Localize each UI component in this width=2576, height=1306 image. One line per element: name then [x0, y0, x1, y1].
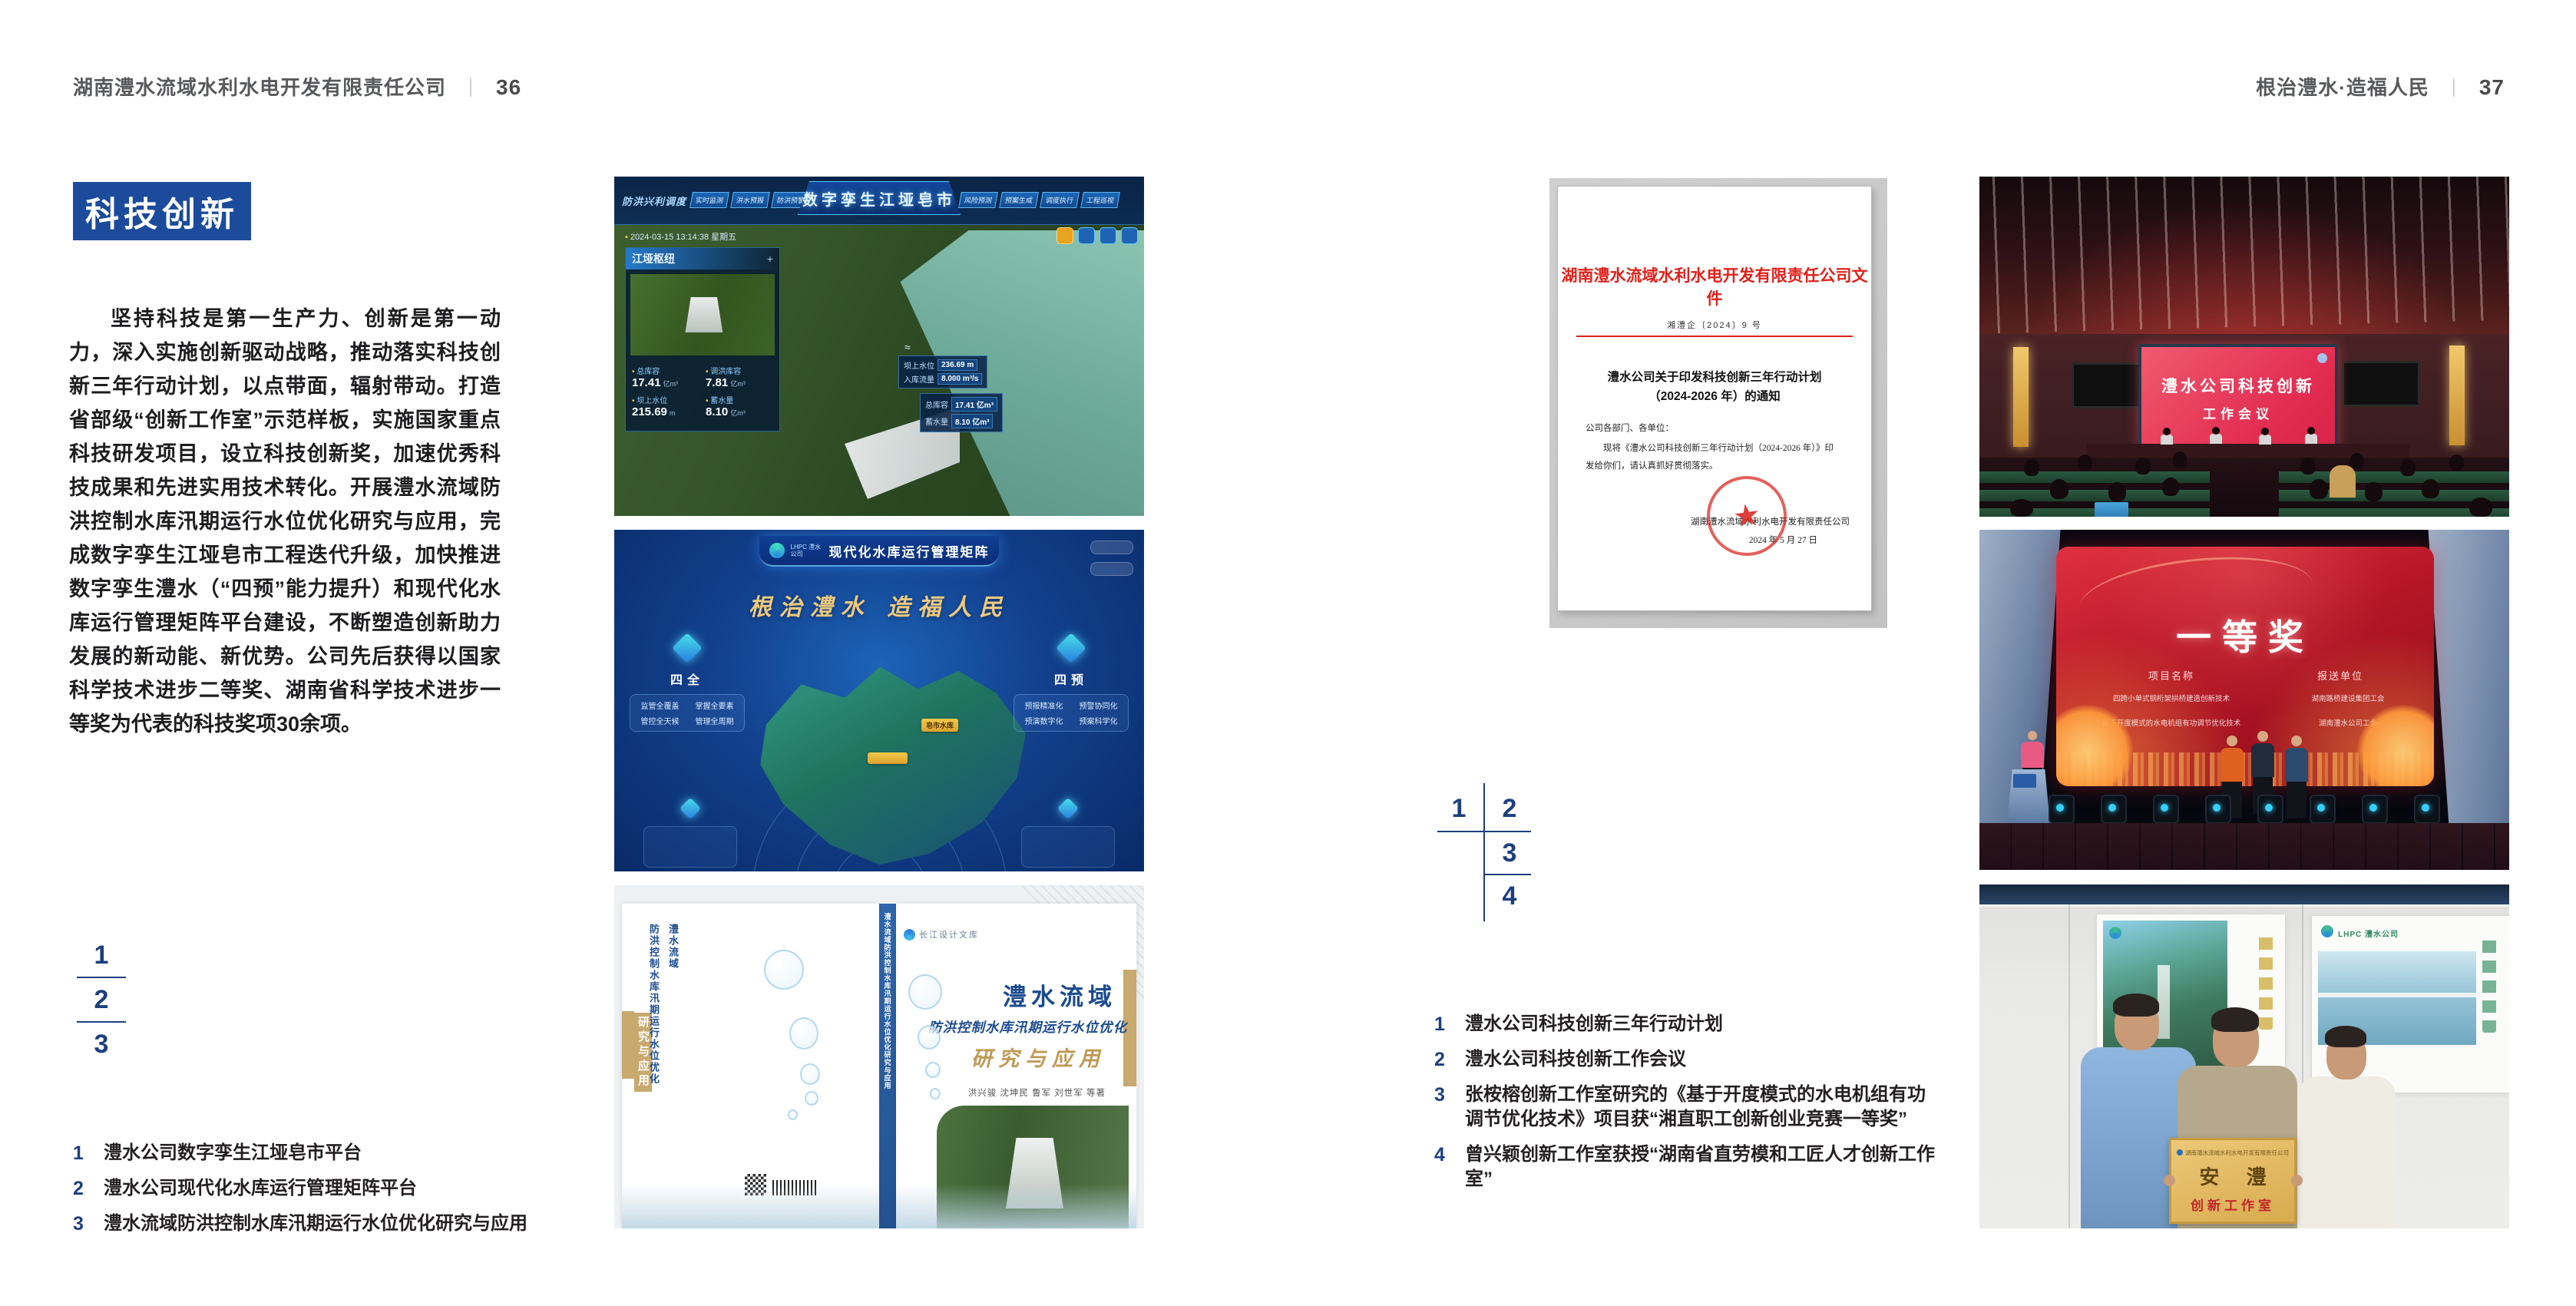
- column-project-name: 项目名称: [2102, 668, 2240, 683]
- notice-title-line2: （2024-2026 年）的通知: [1558, 387, 1871, 404]
- platform-title-banner: LHPC 澧水公司 现代化水库运行管理矩阵: [759, 536, 999, 567]
- expand-icon[interactable]: +: [767, 253, 773, 265]
- caption-text: 澧水公司数字孪生江垭皂市平台: [104, 1141, 362, 1165]
- caption-number: 4: [1434, 1142, 1453, 1192]
- water-droplet: [918, 1025, 941, 1050]
- notice-title-line1: 澧水公司关于印发科技创新三年行动计划: [1558, 368, 1871, 385]
- dashboard-brand: 防洪兴利调度: [622, 193, 686, 208]
- audience-member: [2400, 459, 2416, 476]
- hand: [2164, 1175, 2175, 1186]
- index-divider: [1483, 783, 1485, 921]
- caption-row: 2 澧水公司科技创新工作会议: [1434, 1047, 1938, 1072]
- man-blue-shirt-head: [2115, 1000, 2159, 1050]
- stage-light: [2049, 795, 2075, 824]
- audience-member: [2300, 458, 2316, 474]
- audience-member: [2422, 479, 2439, 498]
- publisher-logo-icon: [904, 929, 915, 941]
- book-authors: 洪兴骏 沈坤民 鲁军 刘世军 等著: [968, 1086, 1106, 1099]
- diamond-icon: [1056, 633, 1086, 663]
- caption-number: 2: [1434, 1047, 1453, 1072]
- book-front-cover: 长江设计文库 澧水流域 防洪控制水库汛期运行水位优化 研究与应用 洪兴骏 沈坤民…: [896, 904, 1136, 1228]
- stat-total-capacity: 总库容 17.41亿m³: [632, 365, 699, 389]
- dam-thumbnail: [630, 274, 775, 355]
- document-number: 湘澧企〔2024〕9 号: [1558, 319, 1871, 331]
- first-prize-title: 一等奖: [2056, 610, 2434, 660]
- index-divider: [1437, 831, 1531, 832]
- caption-row: 4 曾兴颖创新工作室获授“湖南省直劳模和工匠人才创新工作室”: [1434, 1142, 1938, 1192]
- water-droplet: [930, 1088, 941, 1099]
- stat-storage: 蓄水量 8.10亿m³: [706, 394, 773, 418]
- audience-member: [2010, 499, 2033, 517]
- dashboard-tabs-left: 实时监测 洪水预报 防洪预警: [691, 192, 809, 208]
- magazine-spread: 湖南澧水流域水利水电开发有限责任公司 ｜ 36 根治澧水·造福人民 ｜ 37 科…: [0, 0, 2576, 1306]
- panel-speaker: [2259, 435, 2271, 445]
- screen-logo-icon: [2317, 353, 2327, 363]
- layers-icon[interactable]: [1078, 227, 1095, 244]
- stage-light: [2310, 795, 2336, 824]
- dashboard-tabs-right: 风险预测 预案生成 调度执行 工程巡视: [960, 192, 1119, 208]
- panel-speaker: [2210, 434, 2222, 444]
- ceiling-band: [1979, 884, 2509, 907]
- dashboard-title: 数字孪生江垭皂市: [798, 181, 961, 215]
- tab-project-inspection[interactable]: 工程巡视: [1080, 192, 1120, 208]
- figure-award-ceremony: 一等奖 项目名称 报送单位 四跨小单式钢桁架拱桥建造创新技术 湖南路桥建设集团工…: [1979, 530, 2509, 870]
- publisher-badge: 长江设计文库: [904, 928, 979, 941]
- tan-accent-block: [622, 1011, 634, 1079]
- caption-number: 1: [73, 1141, 91, 1165]
- water-droplet: [805, 1091, 818, 1106]
- reservoir-map-label-small[interactable]: [868, 752, 908, 764]
- group-name: 四全: [630, 670, 745, 688]
- audience-member: [2108, 482, 2126, 501]
- caption-row: 3 张桉榕创新工作室研究的《基于开度模式的水电机组有功调节优化技术》项目获“湘直…: [1434, 1083, 1938, 1132]
- reservoir-map-label[interactable]: 皂市水库: [921, 719, 958, 732]
- page-number-left: 36: [496, 75, 521, 100]
- meeting-title-line1: 澧水公司科技创新: [2161, 374, 2315, 397]
- decorative-panel: [643, 826, 737, 868]
- stage-light: [2101, 795, 2127, 824]
- figure-official-document: 湖南澧水流域水利水电开发有限责任公司文件 湘澧企〔2024〕9 号 澧水公司关于…: [1549, 178, 1887, 628]
- document-body-line1: 现将《澧水公司科技创新三年行动计划（2024-2026 年）》印: [1586, 441, 1850, 454]
- index-divider: [1483, 874, 1531, 875]
- document-body-line2: 发给你们，请认真抓好贯彻落实。: [1586, 459, 1718, 471]
- hub-panel-title: 江垭枢纽: [632, 251, 675, 266]
- group-items: 监管全覆盖 掌握全要素 管控全天候 管理全周期: [630, 694, 745, 732]
- book-back-cover: 研究与应用 澧水流域 防洪控制水库汛期运行水位优化: [622, 904, 879, 1228]
- captions-right: 1 澧水公司科技创新三年行动计划 2 澧水公司科技创新工作会议 3 张桉榕创新工…: [1434, 1012, 1938, 1192]
- tab-risk-forecast[interactable]: 风险预测: [958, 192, 998, 208]
- page-left-header: 湖南澧水流域水利水电开发有限责任公司 ｜ 36: [73, 72, 521, 101]
- tissue-box: [2095, 502, 2128, 517]
- wave-icon: ≈: [904, 341, 911, 353]
- audience-member: [2469, 498, 2492, 517]
- panel-speaker: [2305, 434, 2317, 444]
- caption-text: 曾兴颖创新工作室获授“湖南省直劳模和工匠人才创新工作室”: [1465, 1142, 1938, 1192]
- caption-number: 3: [73, 1212, 91, 1236]
- index-divider: [77, 977, 126, 978]
- award-row-project: 四跨小单式钢桁架拱桥建造创新技术: [2072, 693, 2271, 703]
- seal-star-icon: ★: [1731, 497, 1763, 536]
- toolbar-pill[interactable]: [1090, 541, 1133, 554]
- man-khaki-shirt-head: [2213, 1013, 2259, 1067]
- document-red-header: 湖南澧水流域水利水电开发有限责任公司文件: [1558, 263, 1871, 309]
- audience-member: [2349, 453, 2364, 469]
- poster-brand-text: LHPC 澧水公司: [2338, 927, 2399, 939]
- meeting-title-line2: 工作会议: [2203, 403, 2273, 422]
- water-droplet: [788, 1109, 798, 1120]
- salutation: 公司各部门、各单位：: [1586, 422, 1674, 434]
- figure-number: 1: [77, 938, 126, 972]
- caption-text: 澧水公司科技创新工作会议: [1465, 1047, 1686, 1072]
- stage-light: [2414, 795, 2440, 824]
- plaque-logo-icon: [2177, 1149, 2183, 1156]
- figure-number: 1: [1445, 794, 1473, 824]
- stage-light: [2257, 795, 2283, 824]
- stat-water-level: 坝上水位 215.69m: [632, 394, 699, 418]
- caption-text: 澧水公司现代化水库运行管理矩阵平台: [104, 1176, 417, 1201]
- book-title-main: 澧水流域: [1003, 977, 1116, 1012]
- watery-bottom-band: [622, 1184, 879, 1228]
- back-cover-titles: 澧水流域 防洪控制水库汛期运行水位优化: [646, 924, 680, 1100]
- tab-plan-generation[interactable]: 预案生成: [999, 192, 1039, 208]
- toolbar-pill[interactable]: [1090, 562, 1133, 576]
- plaque-name: 安 澧: [2199, 1162, 2277, 1190]
- audience-member: [2365, 482, 2383, 501]
- stage-light: [2362, 795, 2388, 824]
- ceiling-light-strips: [1979, 177, 2509, 334]
- settings-icon[interactable]: [1121, 227, 1138, 244]
- plaque-subtitle: 创新工作室: [2191, 1195, 2275, 1214]
- figure-number: 2: [77, 983, 126, 1017]
- book-title-tail: 研究与应用: [971, 1042, 1106, 1072]
- audience-member: [2135, 458, 2151, 474]
- group-items: 预报精准化 预警协同化 预演数字化 预案科学化: [1014, 694, 1129, 732]
- decorative-panel: [1021, 826, 1115, 868]
- alert-icon[interactable]: [1057, 227, 1073, 244]
- figure-index-left: 1 2 3: [77, 938, 126, 1061]
- audience-member: [2024, 459, 2039, 476]
- figure-book-cover: 研究与应用 澧水流域 防洪控制水库汛期运行水位优化 澧水流域防洪控制水库汛期运行…: [614, 885, 1144, 1228]
- audience-member: [2050, 479, 2068, 499]
- figure-innovation-meeting: 澧水公司科技创新 工作会议: [1979, 177, 2509, 517]
- stage-lights-row: [2049, 795, 2440, 824]
- stage-light: [2153, 795, 2179, 824]
- official-seal: ★: [1701, 471, 1791, 560]
- figure-index-right: 1 2 3 4: [1428, 783, 1536, 929]
- podium-sign: [2013, 774, 2036, 788]
- spine-title: 澧水流域防洪控制水库汛期运行水位优化研究与应用: [883, 913, 893, 1228]
- captions-left: 1 澧水公司数字孪生江垭皂市平台 2 澧水公司现代化水库运行管理矩阵平台 3 澧…: [73, 1141, 541, 1236]
- calligraphy-column: [2259, 930, 2273, 1030]
- plaque-header-text: 湖南澧水流域水利水电开发有限责任公司: [2185, 1149, 2289, 1157]
- group-name: 四预: [1014, 670, 1129, 688]
- reflective-stage-floor: [1979, 823, 2509, 870]
- body-paragraph: 坚持科技是第一生产力、创新是第一动力，深入实施创新驱动战略，推动落实科技创新三年…: [69, 302, 501, 741]
- slogan-text: 根治澧水·造福人民: [2256, 72, 2429, 101]
- caption-number: 3: [1434, 1083, 1453, 1132]
- company-logo-icon: [2109, 927, 2121, 939]
- figure-digital-twin-platform: 防洪兴利调度 实时监测 洪水预报 防洪预警 数字孪生江垭皂市 风险预测 预案生成…: [614, 177, 1144, 516]
- stage-light: [2205, 795, 2231, 824]
- watery-bottom-band: [896, 1184, 1136, 1228]
- water-droplet: [764, 950, 804, 990]
- tab-realtime-monitoring[interactable]: 实时监测: [689, 192, 729, 208]
- locate-icon[interactable]: [1100, 227, 1116, 244]
- audience-member: [2449, 455, 2464, 471]
- hub-panel-title-bar: 江垭枢纽 +: [626, 248, 779, 269]
- group-siquan: 四全 监管全覆盖 掌握全要素 管控全天候 管理全周期: [630, 637, 745, 732]
- audience-member: [2162, 478, 2179, 496]
- company-logo-icon: [769, 543, 785, 558]
- tab-flood-forecast[interactable]: 洪水预报: [730, 192, 770, 208]
- woman-white-shirt-head: [2326, 1032, 2366, 1080]
- figure-number: 4: [1496, 881, 1523, 911]
- woman-white-shirt: [2297, 1076, 2396, 1228]
- caption-row: 3 澧水流域防洪控制水库汛期运行水位优化研究与应用: [73, 1212, 541, 1236]
- header-separator: ｜: [2445, 73, 2464, 100]
- water-droplet: [800, 1063, 820, 1085]
- gold-pillar-light: [2013, 347, 2029, 447]
- audience-member: [2310, 479, 2328, 499]
- caption-row: 1 澧水公司数字孪生江垭皂市平台: [73, 1141, 541, 1165]
- water-droplet: [908, 974, 942, 1010]
- diamond-icon: [672, 633, 703, 663]
- page-number-right: 37: [2479, 75, 2505, 100]
- award-led-screen: 一等奖 项目名称 报送单位 四跨小单式钢桁架拱桥建造创新技术 湖南路桥建设集团工…: [2056, 547, 2434, 786]
- caption-text: 澧水流域防洪控制水库汛期运行水位优化研究与应用: [104, 1212, 527, 1236]
- hub-info-panel: 江垭枢纽 + 总库容 17.41亿m³ 调洪库容 7.81亿m³ 坝上水位 21…: [625, 247, 780, 431]
- calligraphy-column: [2482, 933, 2496, 1033]
- water-droplet: [789, 1017, 818, 1050]
- workshop-plaque: 湖南澧水流域水利水电开发有限责任公司 安 澧 创新工作室: [2169, 1138, 2297, 1224]
- caption-row: 1 澧水公司科技创新三年行动计划: [1434, 1012, 1938, 1037]
- dashboard-tool-icons: [1057, 227, 1138, 244]
- index-divider: [77, 1021, 126, 1023]
- caption-row: 2 澧水公司现代化水库运行管理矩阵平台: [73, 1176, 541, 1201]
- hub-stats-grid: 总库容 17.41亿m³ 调洪库容 7.81亿m³ 坝上水位 215.69m 蓄…: [626, 360, 779, 423]
- wall-tv-screen: [2342, 361, 2420, 407]
- document-page: 湖南澧水流域水利水电开发有限责任公司文件 湘澧企〔2024〕9 号 澧水公司关于…: [1557, 186, 1872, 611]
- company-name: 湖南澧水流域水利水电开发有限责任公司: [73, 72, 446, 101]
- column-submitting-unit: 报送单位: [2279, 668, 2402, 683]
- caption-number: 2: [73, 1176, 91, 1201]
- book-spine: 澧水流域防洪控制水库汛期运行水位优化研究与应用: [879, 904, 896, 1228]
- water-droplet: [925, 1062, 941, 1078]
- figure-innovation-workshop-plaque: LHPC 澧水公司 湖南澧水流域水利水电开发有限责任公司 安 澧 创新工作室: [1979, 884, 2509, 1228]
- book-title-sub: 防洪控制水库汛期运行水位优化: [928, 1017, 1127, 1037]
- caption-number: 1: [1434, 1012, 1453, 1037]
- company-logo-icon: [2321, 925, 2333, 937]
- hand: [2291, 1175, 2303, 1186]
- figure-number: 2: [1496, 794, 1523, 824]
- audience-member: [2078, 455, 2092, 471]
- stage-side-panel: [2429, 530, 2509, 870]
- publisher-name: 长江设计文库: [919, 928, 979, 941]
- panel-speaker: [2161, 435, 2173, 445]
- audience-member: [2173, 451, 2187, 467]
- dashboard-datetime: 2024-03-15 13:14:38 星期五: [625, 230, 736, 243]
- water-level-chip: 坝上水位236.69 m 入库流量8.000 m³/s: [898, 355, 987, 388]
- group-siyu: 四预 预报精准化 预警协同化 预演数字化 预案科学化: [1014, 637, 1129, 732]
- caption-text: 澧水公司科技创新三年行动计划: [1465, 1012, 1723, 1037]
- tab-dispatch-execution[interactable]: 调度执行: [1040, 192, 1080, 208]
- award-row-org: 湖南路桥建设集团工会: [2279, 693, 2417, 703]
- calligraphy-slogan: 根治澧水 造福人民: [749, 588, 1010, 622]
- capacity-chip: 总库容17.41 亿m³ 蓄水量8.10 亿m³: [920, 393, 1003, 432]
- platform-brand: LHPC 澧水公司: [791, 544, 823, 557]
- audience-member-beige-coat: [2330, 465, 2356, 498]
- caption-text: 张桉榕创新工作室研究的《基于开度模式的水电机组有功调节优化技术》项目获“湘直职工…: [1465, 1083, 1938, 1132]
- header-separator: ｜: [461, 73, 481, 100]
- section-title: 科技创新: [73, 182, 251, 240]
- figure-number: 3: [1496, 838, 1523, 868]
- red-rule: [1576, 336, 1853, 337]
- page-right-header: 根治澧水·造福人民 ｜ 37: [2256, 72, 2505, 101]
- figure-number: 3: [77, 1027, 126, 1061]
- figure-matrix-platform: LHPC 澧水公司 现代化水库运行管理矩阵 根治澧水 造福人民 四全 监管全覆盖…: [614, 530, 1144, 871]
- wall-seam: [2068, 904, 2070, 1228]
- stat-flood-capacity: 调洪库容 7.81亿m³: [706, 365, 773, 389]
- platform-title: 现代化水库运行管理矩阵: [829, 541, 990, 560]
- gold-pillar-light: [2449, 346, 2465, 445]
